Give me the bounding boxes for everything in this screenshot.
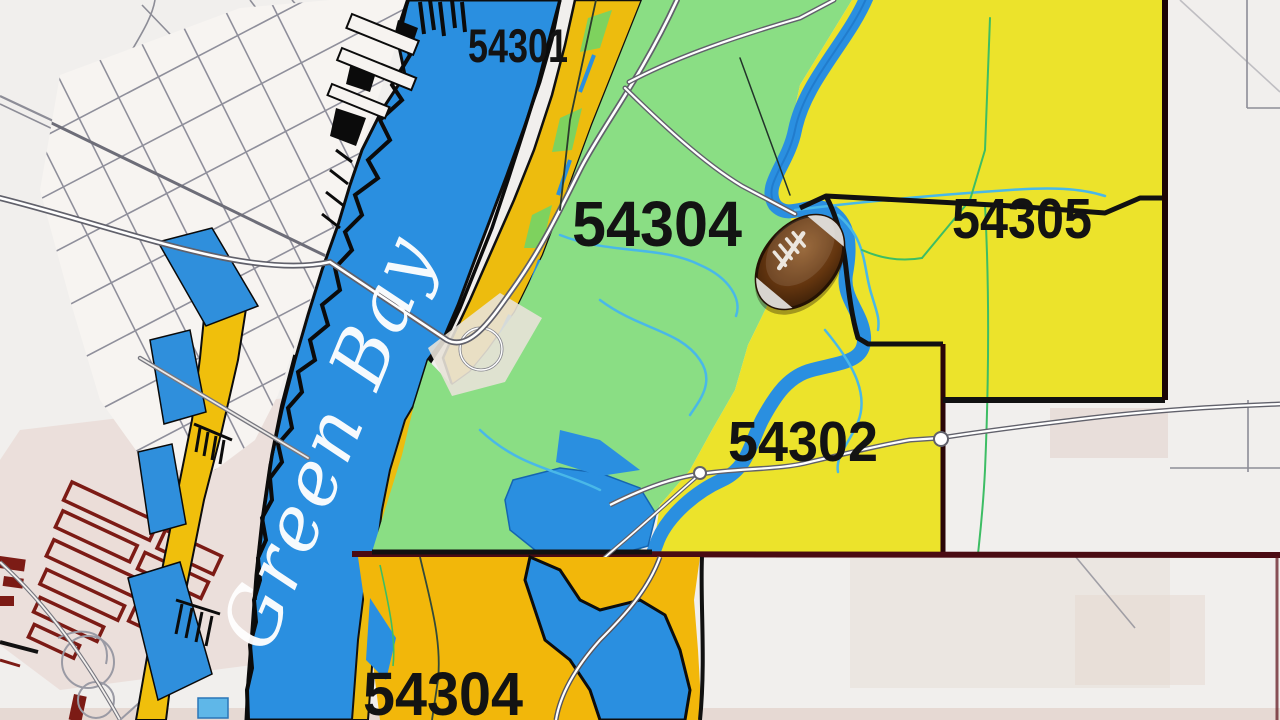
zip-label-54302: 54302 [728,410,878,474]
zip-label-54304: 54304 [572,188,742,260]
zip-label-54305: 54305 [952,187,1092,251]
zip-label-54301: 54301 [468,19,568,72]
zipcode-map[interactable]: 54301 54304 54305 54302 54304 Green Bay [0,0,1280,720]
zip-label-54304-south: 54304 [363,660,523,720]
map-canvas[interactable]: 54301 54304 54305 54302 54304 Green Bay [0,0,1280,720]
